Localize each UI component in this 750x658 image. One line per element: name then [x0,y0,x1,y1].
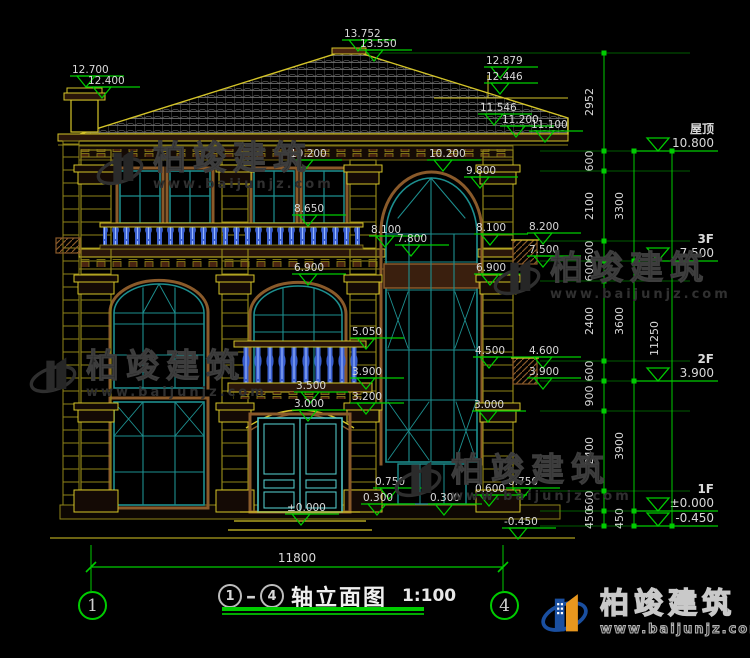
axis-bubble-4: 4 [490,591,519,620]
floor-elevation: -0.450 [675,511,714,525]
floor-elevation: 3.900 [680,366,714,380]
dim-chain-value: 600 [583,151,596,172]
floor-marker-triangle [647,248,669,261]
column-left-center [216,160,254,512]
elevation-value: 3.900 [352,366,382,378]
left-return-wall [63,141,79,515]
roof-fascia [58,134,568,141]
elevation-value: 13.550 [360,38,397,50]
elevation-value: ±0.000 [287,502,326,514]
elevation-value: 11.546 [480,102,517,114]
balcony-3f-long [100,223,363,249]
elevation-value: 8.200 [529,221,559,233]
elevation-marker-triangle [491,83,509,94]
elevation-value: 7.800 [397,233,427,245]
elevation-value: 12.400 [88,75,125,87]
brand-logo-icon [540,581,592,643]
elevation-value: 6.900 [476,262,506,274]
dim-chain-value: 3900 [613,432,626,460]
title-axis-end: 4 [260,584,284,608]
brand-url: www.baijunjz.com [600,623,750,636]
elevation-value: 3.000 [474,399,504,411]
elevation-value: 10.200 [429,148,466,160]
dim-chain-value: 2400 [583,437,596,465]
title-underline-thick [222,607,424,611]
elevation-value: 0.750 [508,476,538,488]
chimney-body [71,100,98,132]
elevation-value: 0.300 [363,492,393,504]
floor-elevation: ±0.000 [670,496,714,510]
elevation-drawing: 13.75213.55012.70012.40012.87912.44611.5… [0,0,750,658]
floor-marker-triangle [647,498,669,511]
dim-chain-value: 2100 [583,192,596,220]
elevation-value: 12.879 [486,55,523,67]
column-left [74,150,118,512]
elevation-value: 3.500 [296,380,326,392]
floor-marker-triangle [647,368,669,381]
title-axis-start: 1 [218,584,242,608]
title-dash: – [246,584,256,608]
window-3f-left-pair [117,168,213,226]
elevation-value: 3.900 [529,366,559,378]
elevation-value: 11.100 [531,119,568,131]
elevation-value: 12.446 [486,71,523,83]
floor-label: 1F [697,482,714,496]
dim-chain-value: 600 [583,361,596,382]
dim-chain-value: 600 [583,261,596,282]
window-3f-center-pair [251,168,347,226]
elevation-value: 5.050 [352,326,382,338]
elevation-marker-triangle [434,160,452,171]
window-1f-left [110,398,208,508]
dim-chain-value: 600 [583,241,596,262]
elevation-value: -0.450 [504,516,538,528]
elevation-value: 4.600 [529,345,559,357]
column-right [476,150,520,512]
elevation-value: 3.200 [352,391,382,403]
dim-chain-value: 11250 [648,321,661,356]
elevation-value: 8.100 [476,222,506,234]
dim-chain-value: 2400 [583,307,596,335]
floor-marker-triangle [647,513,669,526]
axis-bubble-1: 1 [78,591,107,620]
floor-elevation: 7.500 [680,246,714,260]
floor-elevation: 10.800 [672,136,714,150]
elevation-value: 0.300 [430,492,460,504]
floor-label: 2F [697,352,714,366]
floor-label: 3F [697,232,714,246]
floor-label: 屋顶 [690,122,714,136]
dim-chain-value: 3300 [613,192,626,220]
window-stair-tall-arched [381,172,482,464]
dim-chain-value: 900 [583,386,596,407]
title-scale: 1:100 [402,586,456,606]
elevation-value: 7.500 [529,244,559,256]
dim-chain-value: 2952 [583,88,596,116]
floor-marker-triangle [647,138,669,151]
overall-width-dim: 11800 [278,551,316,565]
elevation-value: 10.200 [290,148,327,160]
elevation-value: 0.750 [375,476,405,488]
dim-chain-value: 3600 [613,307,626,335]
elevation-value: 9.800 [466,165,496,177]
elevation-value: 6.900 [294,262,324,274]
brand-logo: 柏竣建筑 www.baijunjz.com [540,581,750,643]
elevation-value: 0.600 [475,483,505,495]
elevation-value: 4.500 [475,345,505,357]
elevation-value: 3.000 [294,398,324,410]
title-underline-thin [222,613,424,615]
elevation-value: 8.650 [294,203,324,215]
brand-name: 柏竣建筑 [600,589,750,618]
window-2f-left-arched [110,280,208,388]
cad-canvas: 13.75213.55012.70012.40012.87912.44611.5… [0,0,750,658]
